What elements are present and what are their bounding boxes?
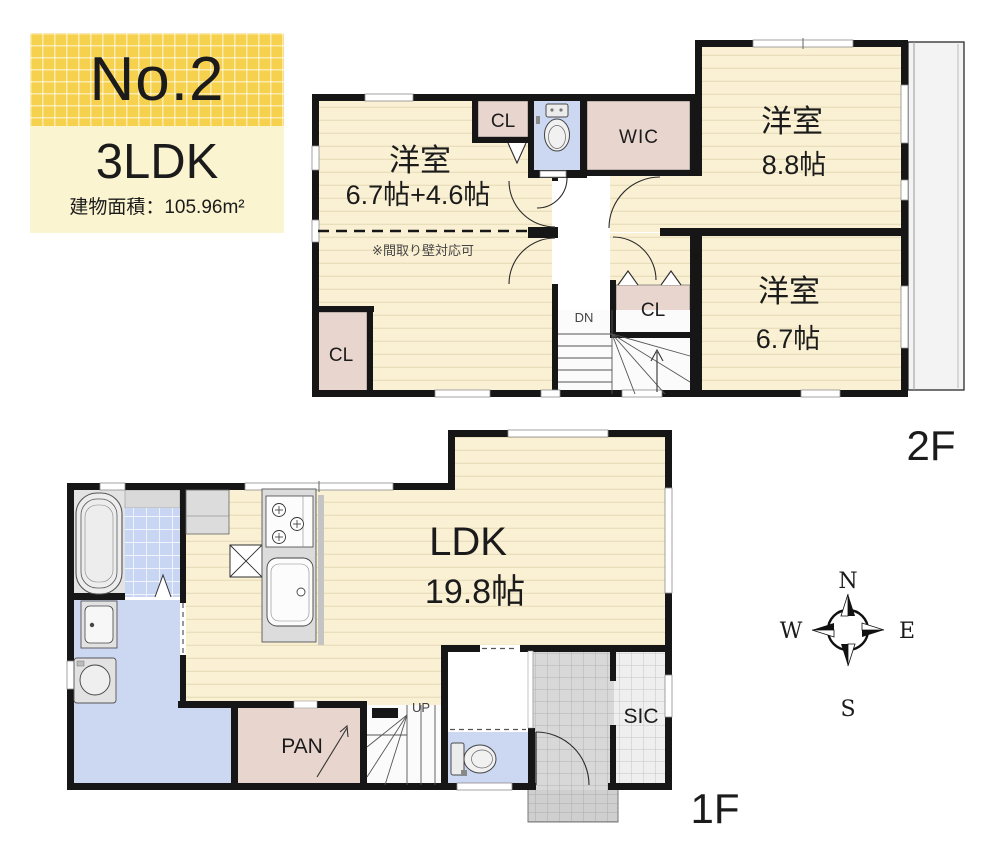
bathroom-floor (125, 508, 180, 597)
washroom-lower (74, 705, 235, 787)
ldk-name: LDK (429, 520, 507, 564)
plan-number: No.2 (90, 44, 225, 115)
partition-note: ※間取り壁対応可 (372, 243, 474, 258)
bathtub-icon (76, 493, 122, 594)
floor2-label: 2F (906, 422, 955, 469)
compass-north: N (838, 569, 857, 594)
hall-1f (448, 651, 532, 730)
bedroom-north-name: 洋室 (761, 104, 823, 139)
ldk-size: 19.8帖 (425, 573, 525, 611)
stove-icon (266, 496, 313, 547)
compass-south: S (840, 697, 855, 722)
porch (528, 790, 618, 822)
entrance (532, 651, 616, 790)
kitchen-sink-icon (267, 558, 313, 626)
title-card: No.2 3LDK 建物面積：105.96m² (30, 33, 284, 233)
stairs-up-label: UP (412, 700, 430, 715)
wic-label: WIC (619, 127, 659, 148)
bath-counter (125, 490, 180, 508)
bedroom-east-size: 6.7帖 (756, 324, 821, 354)
floorplan-2f: 洋室 6.7帖+4.6帖 ※間取り壁対応可 洋室 8.8帖 洋室 6.7帖 CL… (305, 30, 975, 470)
balcony (908, 42, 964, 390)
washbasin-icon (81, 601, 117, 648)
pantry-label: PAN (281, 735, 323, 758)
plan-number-banner: No.2 (30, 33, 284, 126)
building-area: 建物面積：105.96m² (30, 192, 284, 219)
floor1-label: 1F (690, 785, 739, 832)
closet-stairs-label: CL (641, 300, 665, 321)
closet-west-label: CL (329, 345, 353, 366)
bedroom-west-size: 6.7帖+4.6帖 (346, 180, 491, 210)
plan-summary: 3LDK 建物面積：105.96m² (30, 126, 284, 233)
hall-2f (556, 176, 610, 316)
bedroom-east-name: 洋室 (758, 274, 820, 309)
landing (608, 176, 698, 232)
washing-machine-icon (74, 658, 116, 703)
floorplan-1f: LDK 19.8帖 PAN SIC UP 1F (55, 425, 775, 835)
stairs-down-label: DN (575, 310, 594, 325)
bedroom-west-name: 洋室 (389, 143, 451, 178)
sic-label: SIC (623, 705, 658, 728)
bedroom-north-size: 8.8帖 (762, 150, 827, 180)
compass-icon: N S E W (770, 538, 930, 723)
kitchen-cupboard (186, 490, 229, 534)
closet-top-label: CL (491, 111, 515, 132)
compass-east: E (899, 619, 915, 644)
compass-west: W (780, 619, 803, 644)
layout-type: 3LDK (30, 134, 284, 190)
floorplan-page: No.2 3LDK 建物面積：105.96m² (0, 0, 1000, 867)
